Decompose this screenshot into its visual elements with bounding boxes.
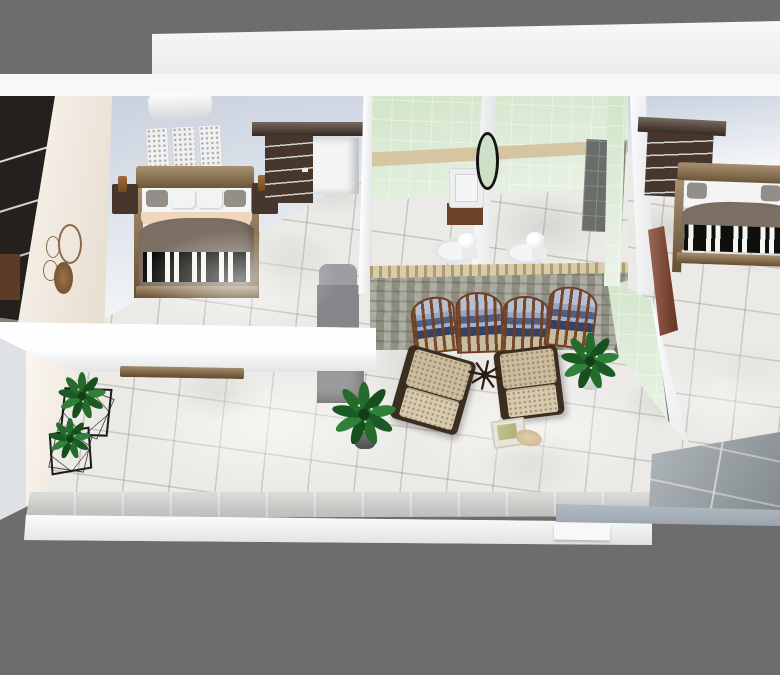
sofa-body <box>317 285 359 331</box>
pillow <box>709 182 734 201</box>
art-ring <box>46 236 60 258</box>
closet-storage-box <box>0 254 20 300</box>
hall-wall-shelf <box>120 366 244 379</box>
bed-right <box>666 158 780 277</box>
bed-foot-rail <box>136 286 258 298</box>
pillow <box>146 190 168 207</box>
art-ring <box>58 224 82 264</box>
monstera-plant <box>332 382 396 444</box>
window-pelmet <box>148 92 213 121</box>
pillow <box>197 189 222 208</box>
armchair-right <box>493 344 565 421</box>
armchair-back-cushion <box>499 348 557 389</box>
toilet-flush-sphere <box>458 233 477 249</box>
armchair-seat-cushion <box>506 384 559 418</box>
planter-plant <box>48 418 92 458</box>
wardrobe-handle <box>302 168 308 172</box>
pillow <box>687 182 708 199</box>
pillow <box>735 183 760 202</box>
wardrobe-left-top <box>252 122 364 136</box>
dressing-alcove <box>313 138 359 194</box>
top-exterior-wall <box>0 74 780 98</box>
toilet-tank <box>532 247 547 259</box>
toilet-flush-sphere <box>526 232 545 248</box>
bed-headboard <box>136 166 254 190</box>
circle-wall-art <box>40 222 86 296</box>
bed-striped-runner <box>684 224 780 254</box>
render-viewport <box>0 0 780 675</box>
bed-striped-runner <box>143 252 250 282</box>
outer-wall-left <box>0 338 28 520</box>
white-step <box>554 524 610 541</box>
art-filled-oval <box>54 262 73 294</box>
oval-mirror <box>476 132 499 190</box>
lounge-plant <box>560 332 620 388</box>
pillow <box>761 185 780 202</box>
pillow <box>170 189 195 208</box>
bed-foot-rail <box>676 252 780 267</box>
pillow <box>224 190 246 207</box>
nightstand-lamp <box>118 176 127 192</box>
tray-contents <box>497 423 518 440</box>
planter-plant <box>56 372 108 418</box>
screen-panel-2 <box>455 291 504 354</box>
